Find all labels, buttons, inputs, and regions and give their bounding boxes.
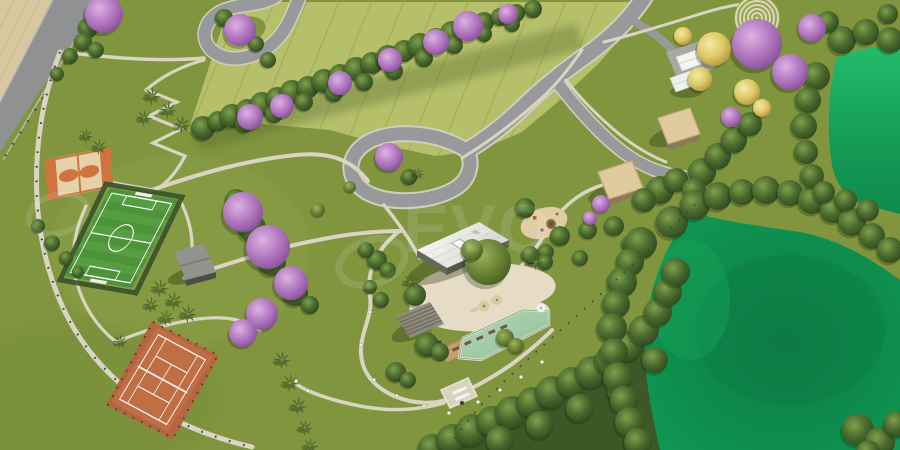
watermark-text: EVO (403, 191, 553, 267)
masterplan-aerial-render: EVO (0, 0, 900, 450)
masterplan-svg: EVO (0, 0, 900, 450)
